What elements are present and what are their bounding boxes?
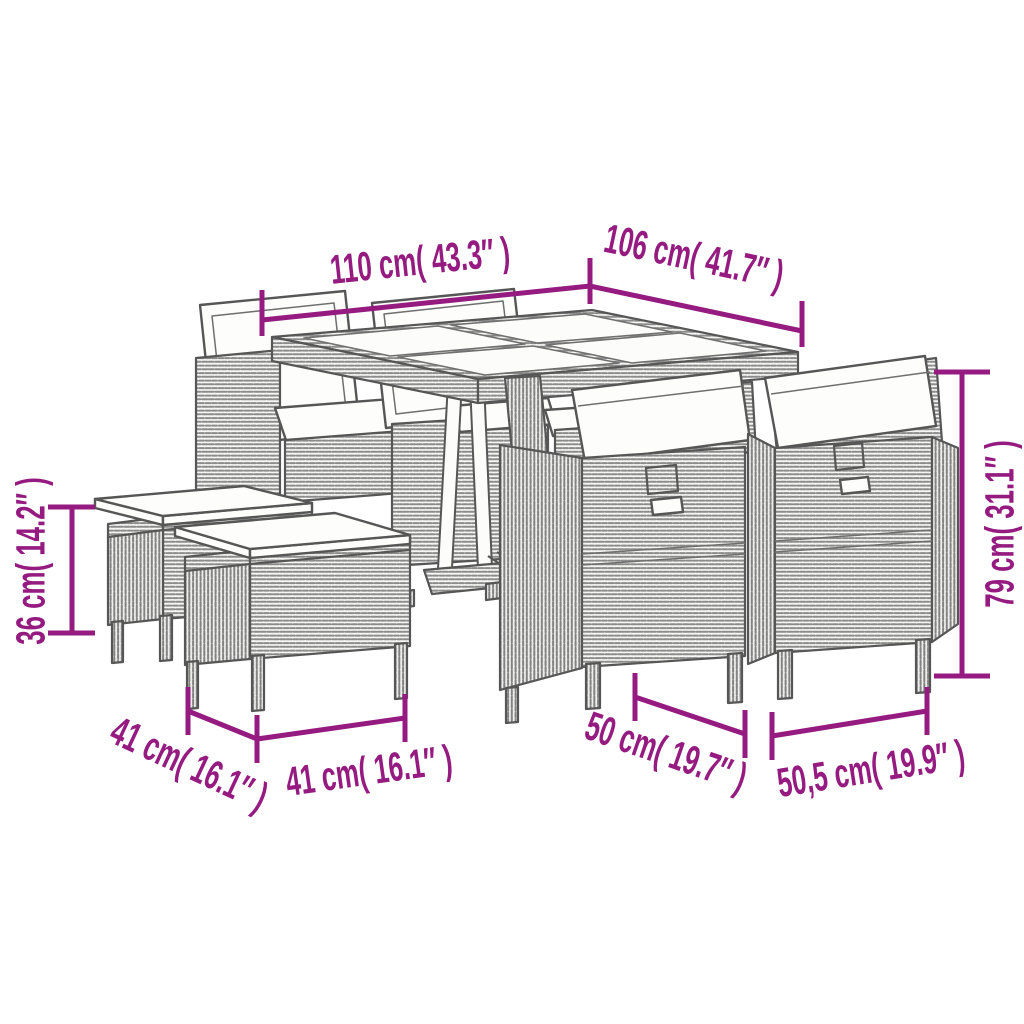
front-chair-right-illustration	[748, 356, 958, 699]
product-dimension-diagram: 110 cm( 43.3″ ) 106 cm( 41.7″ ) 79 cm( 3…	[0, 0, 1024, 1024]
furniture-illustration	[0, 0, 1024, 1024]
dim-label-stool-height: 36 cm( 14.2″ )	[11, 477, 52, 644]
stool-front-illustration	[175, 513, 410, 711]
dim-label-chair-height: 79 cm( 31.1″ )	[980, 440, 1021, 607]
